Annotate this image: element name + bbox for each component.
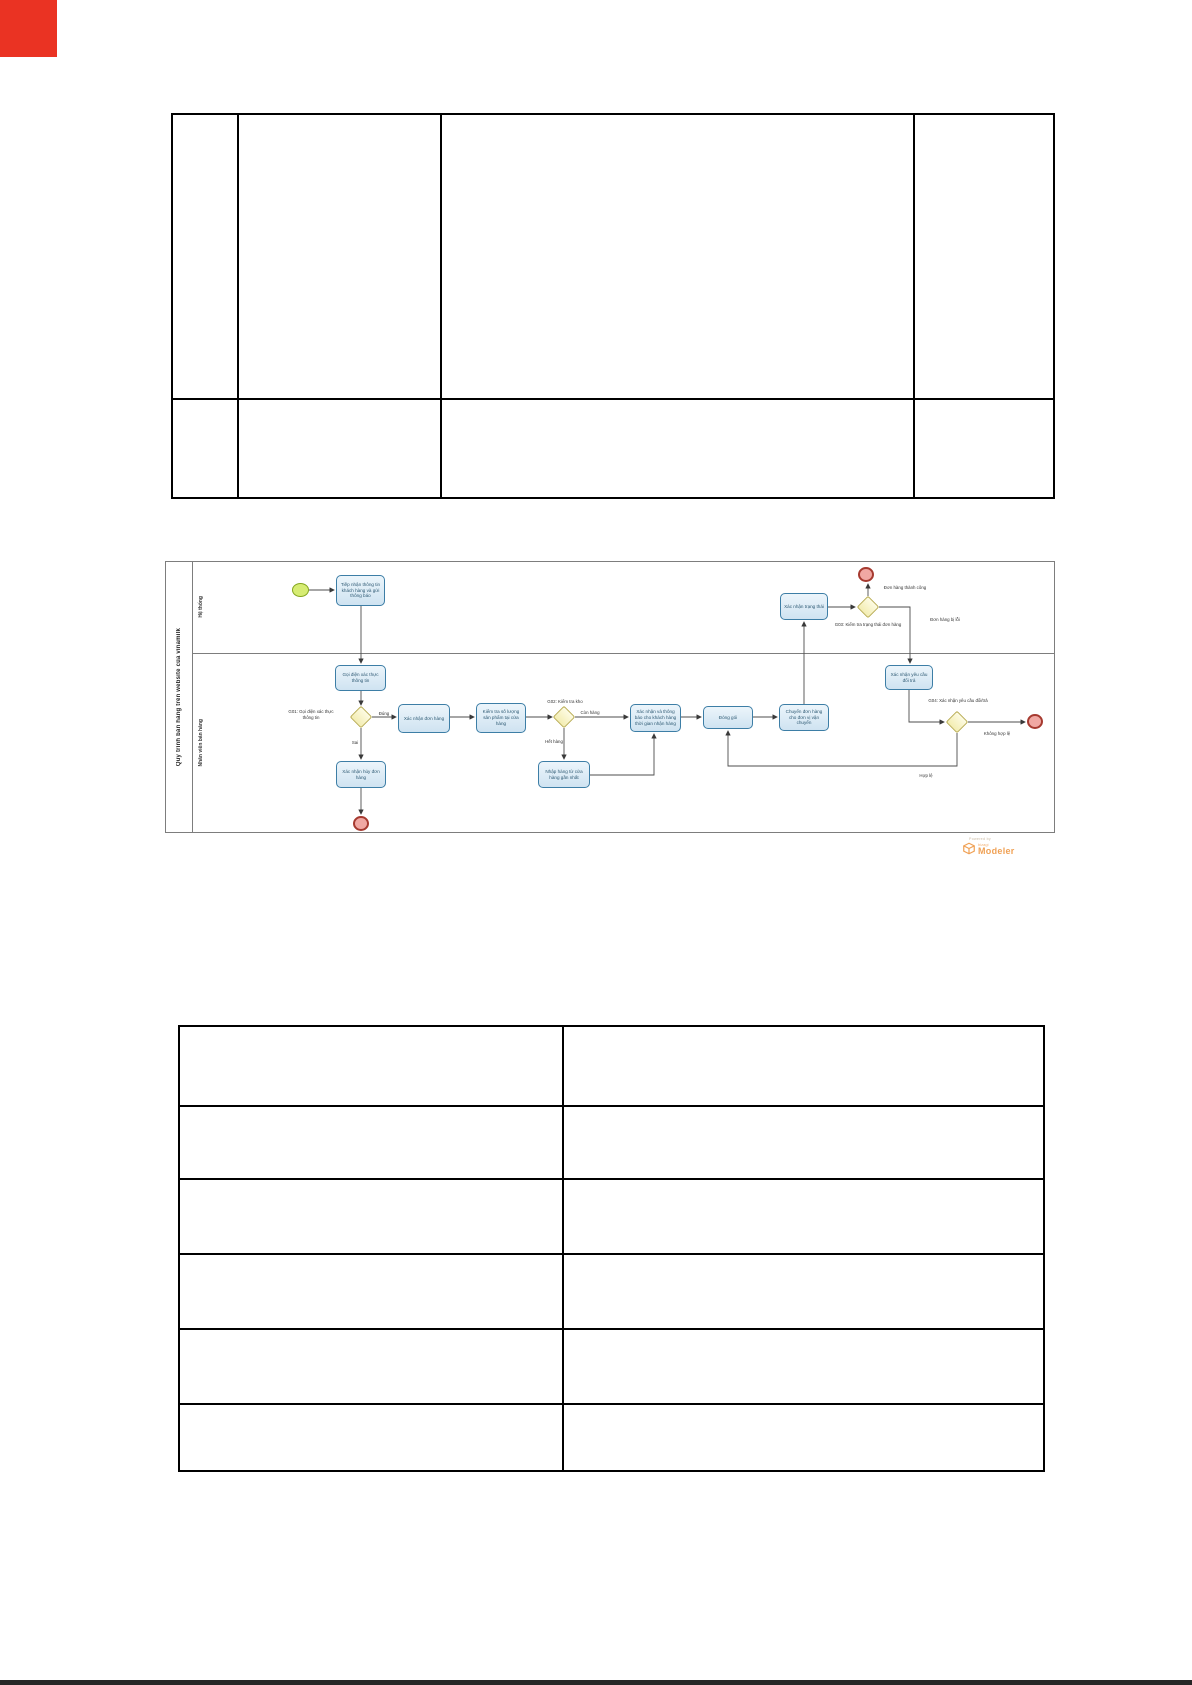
top-table [171,113,1055,499]
table-cell [563,1404,1044,1471]
table-cell [179,1254,563,1329]
modeler-text: Modeler [978,847,1015,856]
table-cell [172,399,238,498]
bottom-table [178,1025,1045,1472]
task-xac-nhan-thong-bao: Xác nhận và thông báo cho khách hàng thờ… [630,704,681,732]
edge-label-con-hang: Còn hàng [573,710,607,716]
diagram-connectors [165,561,1055,833]
bizagi-modeler-logo: Powered by bizagi Modeler [962,837,1052,856]
gateway-caption-g03: G03: Kiểm tra trạng thái đơn hàng [833,622,903,628]
table-cell [172,114,238,399]
red-corner-marker [0,0,57,57]
edge-label-hop-le: Hợp lệ [905,773,947,779]
task-chuyen-don-hang: Chuyển đơn hàng cho đơn vị vận chuyển [779,704,829,731]
table-cell [179,1026,563,1106]
task-xac-nhan-trang-thai: Xác nhận trạng thái [780,593,828,620]
edge-label-khong-hop-le: Không hợp lệ [969,731,1025,737]
edge-label-het-hang: Hết hàng [537,739,571,745]
table-cell [914,114,1054,399]
end-event-cancel [353,816,369,831]
edge-label-bi-loi: Đơn hàng bị lỗi [917,617,973,623]
table-cell [179,1179,563,1254]
gateway-caption-g01: G01: Gọi điện xác thực thông tin [283,709,339,720]
start-event [292,583,309,597]
edge-label-thanh-cong: Đơn hàng thành công [873,585,937,591]
table-cell [563,1329,1044,1404]
edge-label-dung: Đúng [371,711,397,717]
gateway-caption-g02: G02: Kiểm tra kho [534,699,596,705]
table-cell [441,399,914,498]
table-cell [563,1179,1044,1254]
table-cell [179,1106,563,1179]
table-cell [441,114,914,399]
end-event-return [1027,714,1043,729]
table-cell [563,1026,1044,1106]
task-xac-nhan-huy: Xác nhận hủy đơn hàng [336,761,386,788]
table-cell [179,1404,563,1471]
task-kiem-tra-so-luong: Kiểm tra số lượng sản phẩm tại cửa hàng [476,703,526,733]
task-nhap-hang: Nhập hàng từ cửa hàng gần nhất [538,761,590,788]
table-cell [238,399,441,498]
bpmn-diagram: Quy trình bán hàng trên website của vina… [165,561,1055,833]
document-page: { "page": { "background": "#ffffff", "to… [0,0,1192,1685]
edge-label-sai: Sai [343,740,367,746]
page-bottom-bar [0,1680,1192,1685]
task-goi-dien-xac-thuc: Gọi điện xác thực thông tin [335,665,386,691]
task-dong-goi: Đóng gói [703,706,753,729]
table-cell [914,399,1054,498]
table-cell [563,1254,1044,1329]
table-cell [563,1106,1044,1179]
task-xac-nhan-don-hang: Xác nhận đơn hàng [398,704,450,733]
gateway-caption-g04: G04: Xác nhận yêu cầu đổi/trả [923,698,993,704]
bizagi-cube-icon [962,841,976,856]
end-event-success [858,567,874,582]
table-cell [238,114,441,399]
task-xac-nhan-doi-tra: Xác nhận yêu cầu đổi trả [885,665,933,690]
table-cell [179,1329,563,1404]
task-tiep-nhan-thong-tin: Tiếp nhận thông tin khách hàng và gửi th… [336,575,385,606]
